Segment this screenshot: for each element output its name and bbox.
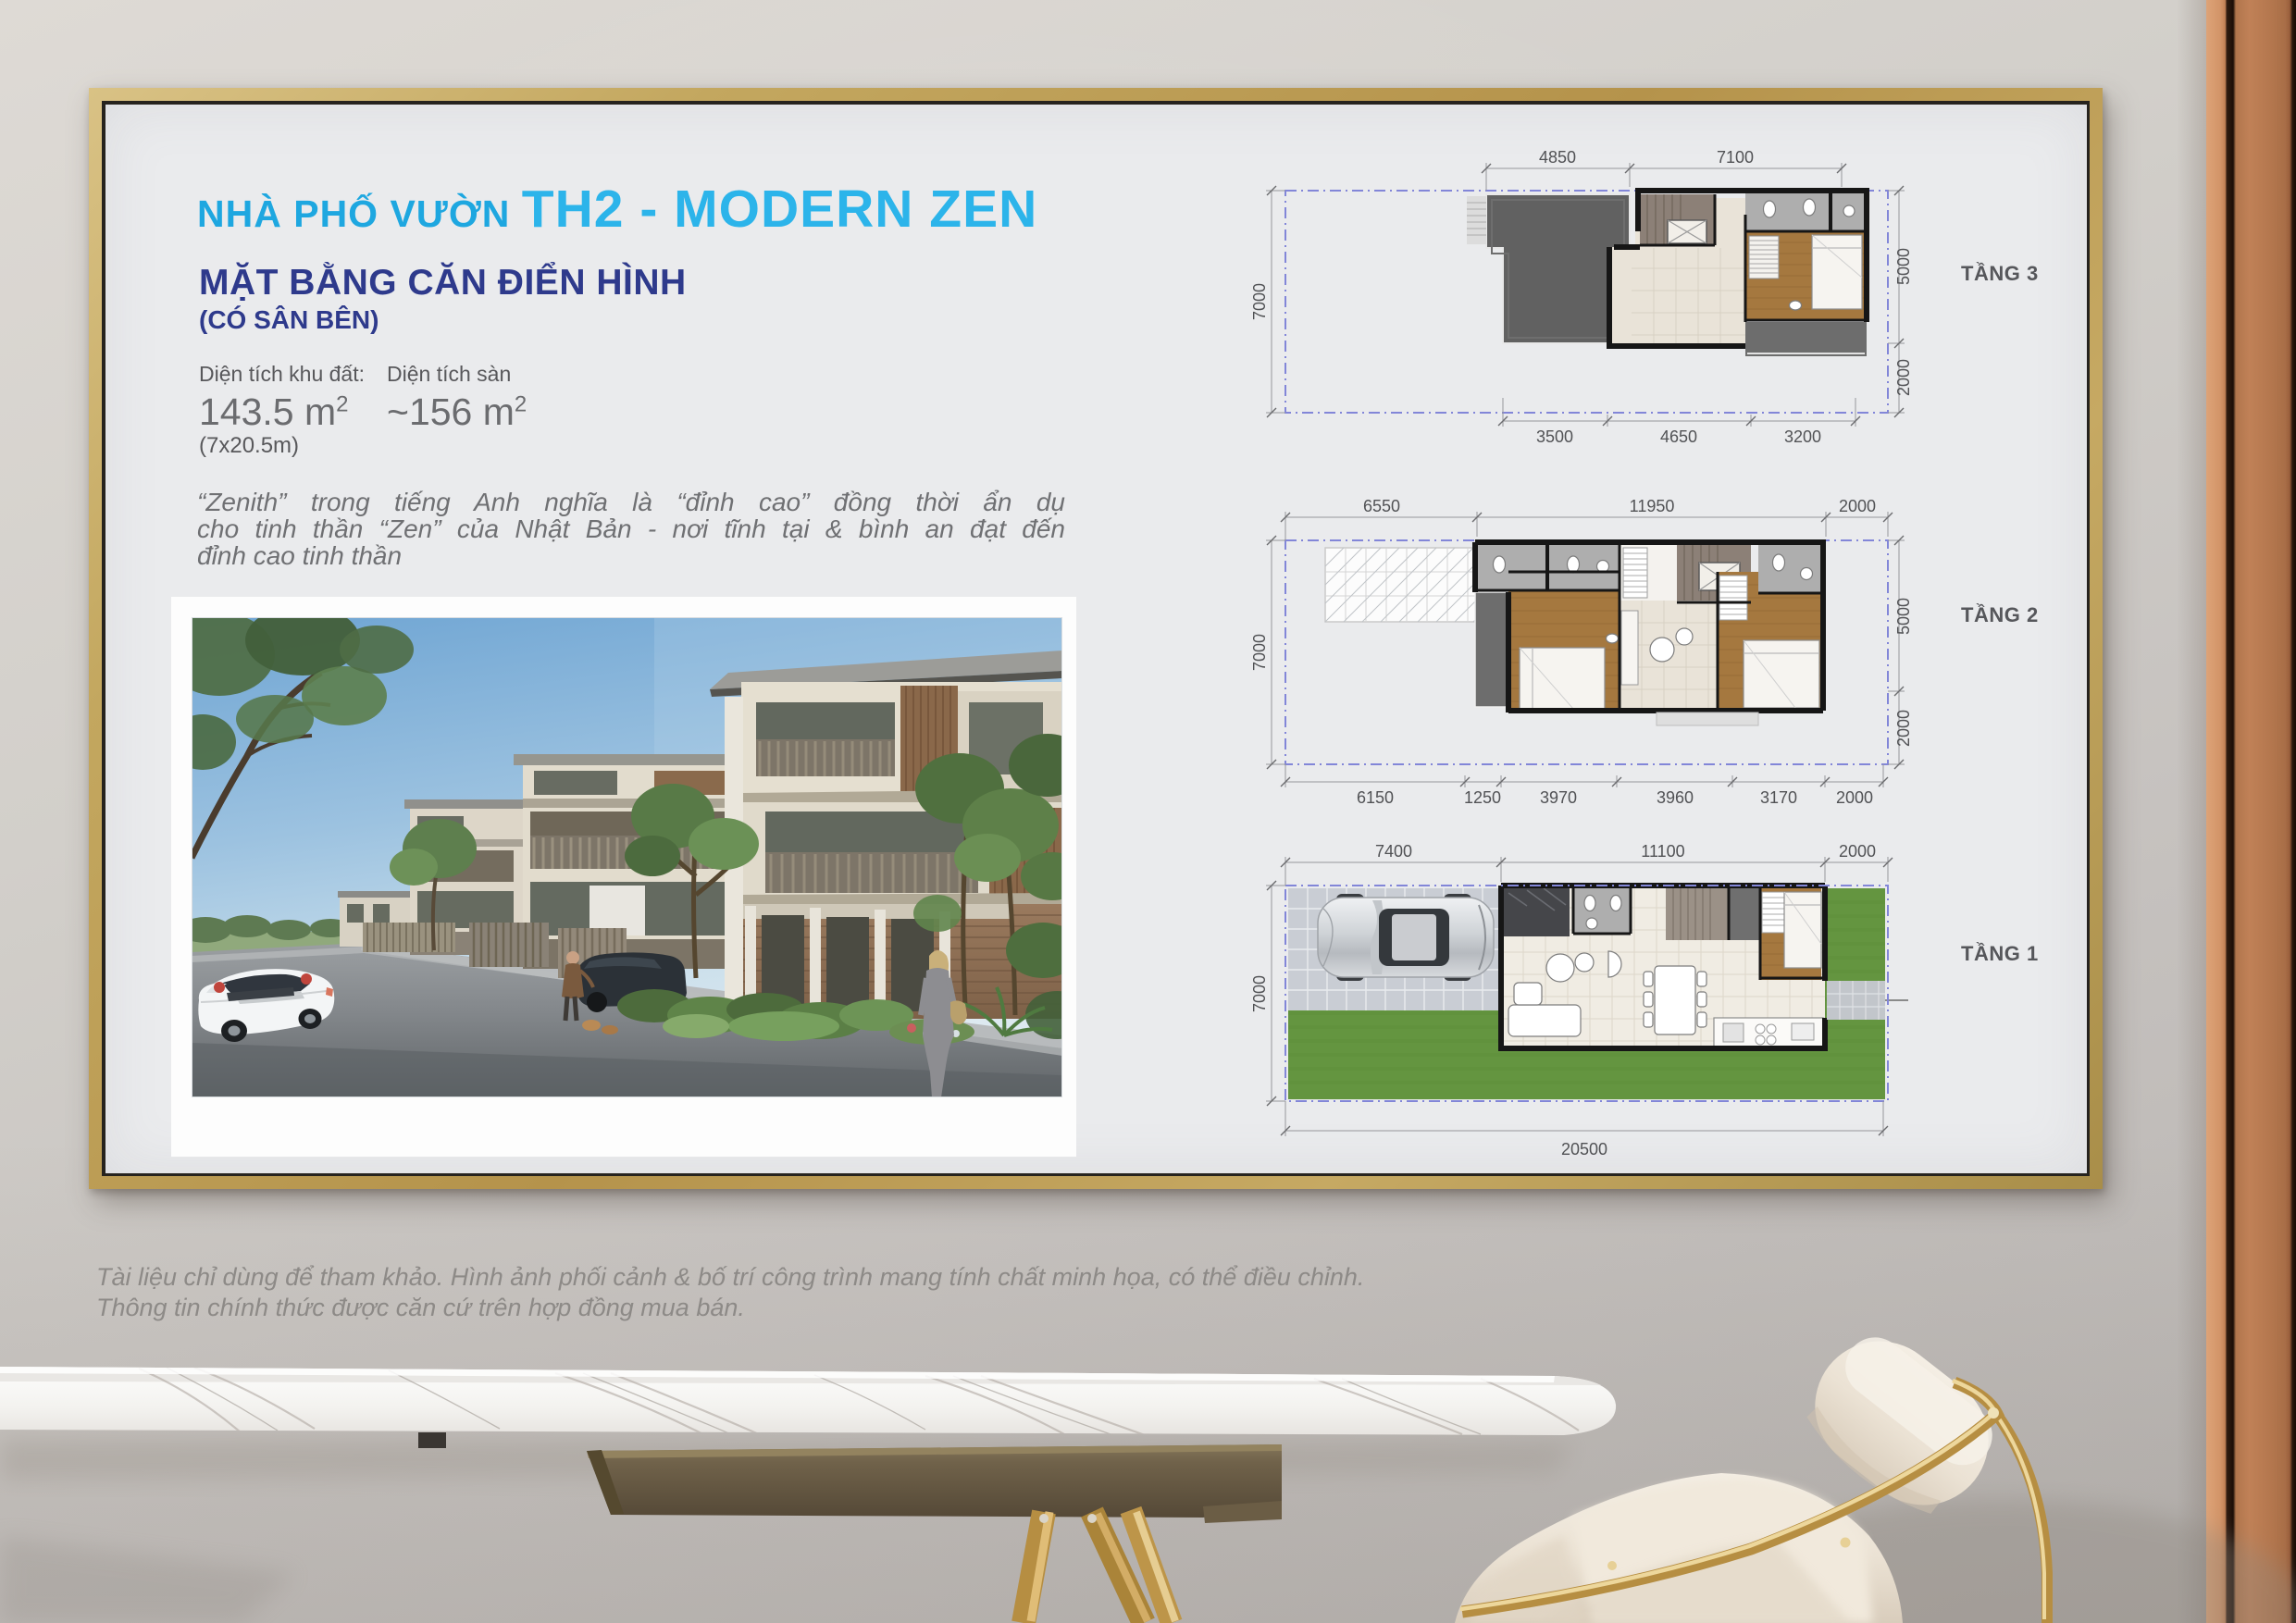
svg-text:7000: 7000: [1250, 975, 1269, 1012]
svg-text:2000: 2000: [1839, 842, 1876, 861]
svg-text:1250: 1250: [1464, 788, 1501, 807]
svg-text:6550: 6550: [1363, 497, 1400, 515]
svg-text:5000: 5000: [1894, 248, 1913, 285]
svg-text:20500: 20500: [1561, 1140, 1607, 1158]
svg-text:5000: 5000: [1894, 598, 1913, 635]
svg-text:4650: 4650: [1660, 427, 1697, 446]
svg-text:11950: 11950: [1630, 497, 1675, 515]
svg-text:3960: 3960: [1657, 788, 1694, 807]
svg-text:3200: 3200: [1784, 427, 1821, 446]
svg-text:2000: 2000: [1839, 497, 1876, 515]
svg-text:4850: 4850: [1539, 148, 1576, 167]
svg-text:2000: 2000: [1894, 710, 1913, 747]
svg-text:7000: 7000: [1250, 634, 1269, 671]
svg-text:3500: 3500: [1536, 427, 1573, 446]
svg-text:7400: 7400: [1375, 842, 1412, 861]
svg-text:3170: 3170: [1760, 788, 1797, 807]
svg-text:7100: 7100: [1717, 148, 1754, 167]
svg-text:11100: 11100: [1641, 842, 1684, 861]
svg-text:3970: 3970: [1540, 788, 1577, 807]
svg-text:7000: 7000: [1250, 283, 1269, 320]
svg-text:2000: 2000: [1836, 788, 1873, 807]
svg-text:2000: 2000: [1894, 359, 1913, 396]
svg-text:6150: 6150: [1357, 788, 1394, 807]
